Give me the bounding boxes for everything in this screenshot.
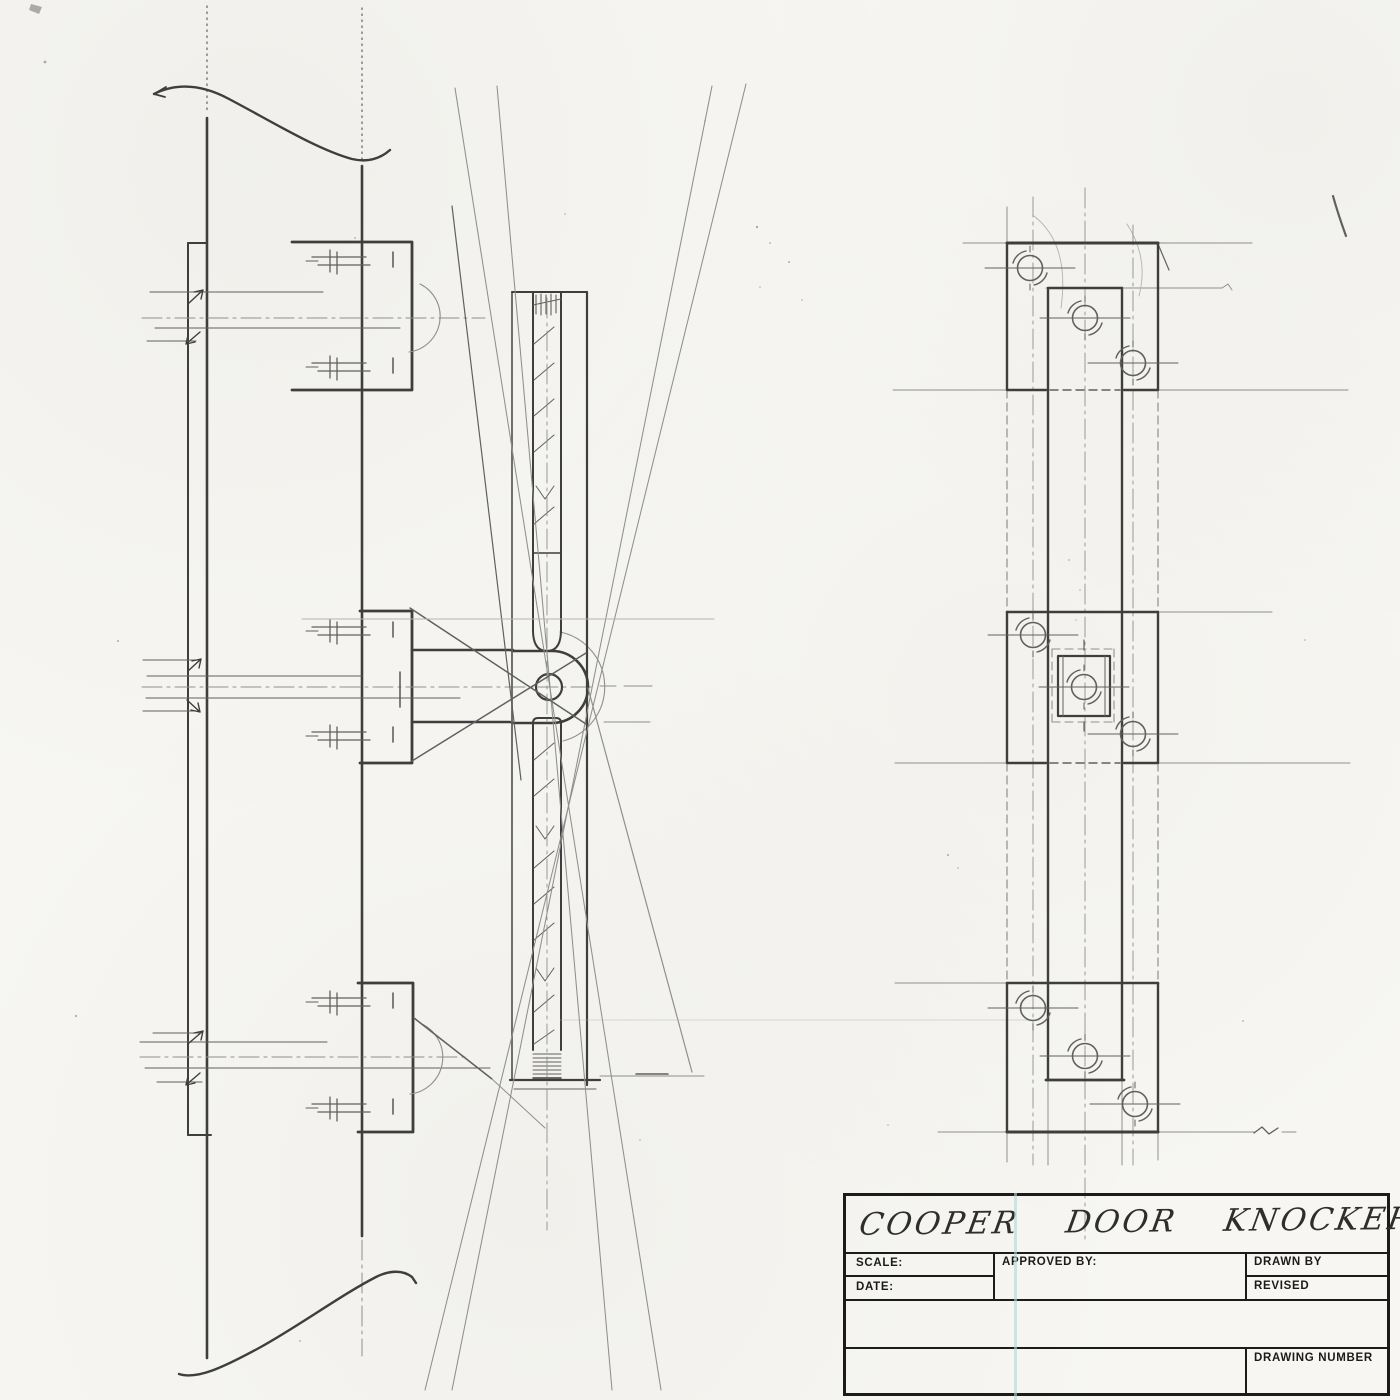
blueprint-page: COOPER DOOR KNOCKER SCALE: DATE: APPROVE… <box>0 0 1400 1400</box>
knocker-bar-channel <box>510 292 600 1089</box>
titleblock-divider <box>1245 1275 1387 1277</box>
scale-label: SCALE: <box>856 1257 903 1269</box>
door-break-curve-bottom <box>179 1272 416 1376</box>
drawing-title: COOPER DOOR KNOCKER <box>857 1201 1384 1242</box>
front-view <box>893 188 1350 1242</box>
titleblock-divider <box>1245 1252 1247 1301</box>
front-top-bracket <box>1007 243 1158 390</box>
titleblock-divider <box>846 1347 1387 1349</box>
pivot-block <box>1052 640 1114 731</box>
title-block: COOPER DOOR KNOCKER SCALE: DATE: APPROVE… <box>843 1193 1390 1396</box>
drawn-by-label: DRAWN BY <box>1254 1256 1322 1268</box>
drawing-number-label: DRAWING NUMBER <box>1254 1352 1373 1364</box>
titleblock-divider <box>846 1299 1387 1301</box>
door-break-curve-top <box>154 87 390 161</box>
scanner-artifact-line <box>1014 1193 1017 1400</box>
drawing-canvas <box>0 0 1400 1400</box>
side-section-view <box>140 6 1040 1390</box>
door-edge-lines <box>207 6 362 1358</box>
bolt-symbols <box>306 250 393 1121</box>
front-bottom-bracket <box>1007 983 1158 1132</box>
paper-specks <box>29 4 1346 1342</box>
titleblock-divider <box>846 1275 993 1277</box>
knocker-arm <box>400 650 513 722</box>
pencil-stray-mark <box>1333 196 1346 236</box>
revised-label: REVISED <box>1254 1280 1309 1292</box>
date-label: DATE: <box>856 1281 894 1293</box>
leader-lines <box>140 290 652 1085</box>
titleblock-divider <box>1245 1347 1247 1393</box>
titleblock-divider <box>993 1252 995 1301</box>
screw-symbols <box>985 246 1180 1126</box>
titleblock-divider <box>846 1252 1387 1254</box>
